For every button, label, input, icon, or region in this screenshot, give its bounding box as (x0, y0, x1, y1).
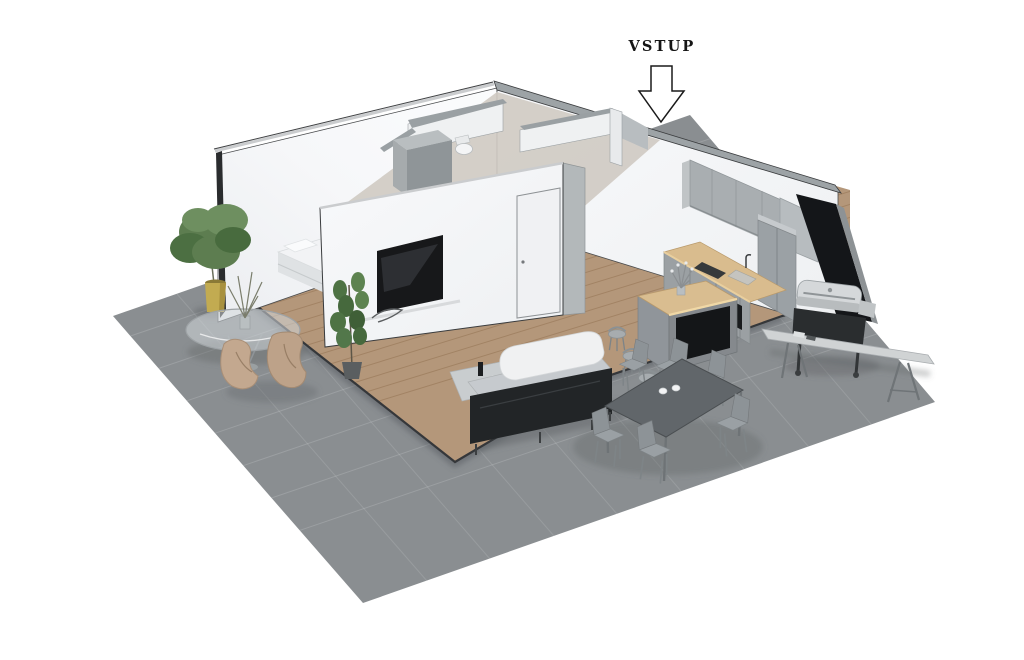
interior-door (517, 188, 560, 318)
floor-plan-canvas: VSTUP (0, 0, 1024, 660)
door-handle (521, 260, 524, 263)
coffee-cup (672, 385, 680, 391)
upper-cabinet-end (682, 160, 690, 209)
coffee-cup (659, 388, 667, 394)
decor-bottle (478, 362, 483, 376)
apartment-render: VSTUP (0, 0, 1024, 660)
entrance-label: VSTUP (627, 38, 695, 55)
wall-corner-face (563, 163, 585, 315)
plant-pot (342, 362, 362, 379)
